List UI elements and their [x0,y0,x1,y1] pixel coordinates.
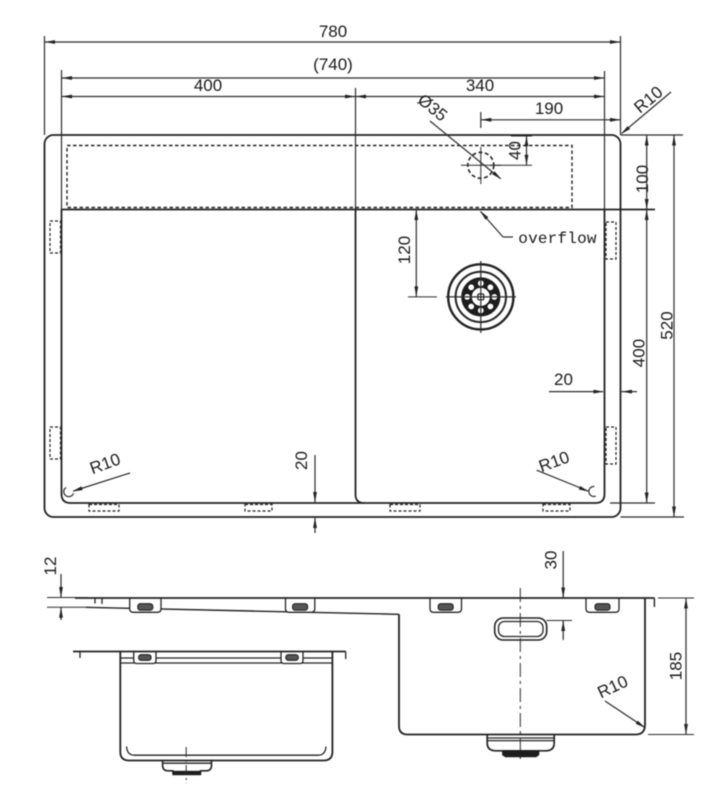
svg-text:20: 20 [292,451,311,470]
svg-text:20: 20 [554,370,573,389]
svg-text:400: 400 [194,76,222,95]
svg-text:340: 340 [466,76,494,95]
svg-text:185: 185 [667,652,686,680]
svg-text:40: 40 [506,141,525,160]
svg-text:120: 120 [395,236,414,264]
svg-text:190: 190 [535,99,563,118]
svg-text:520: 520 [658,311,677,339]
svg-text:30: 30 [542,551,561,570]
svg-text:100: 100 [633,165,652,193]
svg-text:780: 780 [319,22,347,41]
svg-text:overflow: overflow [518,230,597,248]
svg-text:(740): (740) [313,55,353,74]
svg-text:12: 12 [41,557,60,576]
svg-text:400: 400 [630,339,649,367]
